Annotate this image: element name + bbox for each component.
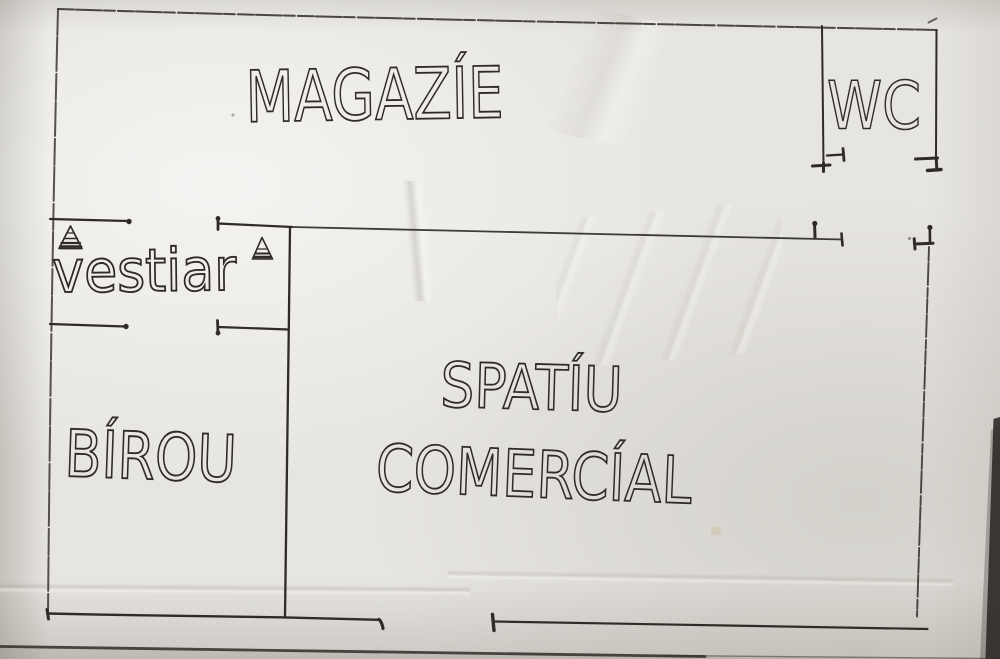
dot-right-wall-stub bbox=[927, 225, 932, 230]
dot-vestiar-bottom-opening bbox=[123, 324, 128, 329]
tick-wc-right-base bbox=[916, 158, 938, 159]
tick-right-wall-serif bbox=[914, 239, 915, 249]
wall-vestiar-top-left bbox=[50, 219, 128, 221]
room-labels: MAGAZÍE WC vestiar BÍROU SPATÍU COMERCÍA… bbox=[52, 51, 921, 519]
tick-wc-left-base bbox=[813, 165, 831, 166]
hatched-triangle-icon bbox=[253, 238, 273, 260]
tick-wc-right-foot bbox=[928, 170, 942, 171]
wall-divider-vertical bbox=[285, 228, 290, 616]
tick-wc-door-serif bbox=[843, 149, 844, 161]
wall-wc-left bbox=[822, 26, 824, 163]
tick-bottom-opening-right bbox=[493, 615, 495, 631]
floorplan-drawing: MAGAZÍE WC vestiar BÍROU SPATÍU COMERCÍA… bbox=[0, 0, 1000, 659]
paper-stain bbox=[711, 527, 722, 536]
tick-top-right-corner bbox=[929, 19, 937, 23]
tick-wc-door-bar bbox=[827, 155, 844, 156]
triangle-outline bbox=[253, 238, 273, 260]
wall-top bbox=[58, 9, 937, 30]
tick-middle-wall-end bbox=[842, 234, 843, 246]
tick-bottom-left-corner bbox=[47, 610, 49, 620]
dot-vestiar-bottom-tick bbox=[216, 331, 221, 336]
room-label-birou: BÍROU bbox=[63, 414, 238, 498]
room-label-magazie: MAGAZÍE bbox=[245, 51, 504, 138]
room-label-wc: WC bbox=[827, 68, 921, 145]
wall-vestiar-bottom-left bbox=[50, 324, 125, 327]
wall-bottom-right bbox=[495, 622, 928, 630]
wall-left bbox=[48, 9, 58, 614]
wall-right-upper bbox=[936, 31, 937, 157]
paper-speck bbox=[908, 237, 911, 240]
tick-bottom-opening-left bbox=[379, 620, 383, 629]
wall-bottom-left bbox=[48, 614, 380, 620]
wall-right-lower bbox=[917, 247, 929, 617]
dot-vestiar-top-tick bbox=[216, 216, 221, 221]
tick-wc-right-stub bbox=[936, 158, 937, 169]
room-label-vestiar: vestiar bbox=[52, 235, 238, 306]
room-label-spatiu-line1: SPATÍU bbox=[440, 348, 624, 426]
dot-vestiar-top-opening bbox=[126, 219, 131, 224]
floorplan-photo: MAGAZÍE WC vestiar BÍROU SPATÍU COMERCÍA… bbox=[0, 0, 1000, 659]
wall-vestiar-top-right bbox=[218, 224, 292, 228]
paper-speck bbox=[231, 113, 234, 116]
tick-right-wall-bar bbox=[915, 243, 934, 244]
room-label-spatiu-line2: COMERCÍAL bbox=[374, 429, 693, 520]
dot-middle-wall-tick bbox=[812, 221, 817, 226]
wall-middle-horizontal bbox=[292, 227, 842, 240]
wall-vestiar-bottom-right bbox=[218, 327, 289, 330]
